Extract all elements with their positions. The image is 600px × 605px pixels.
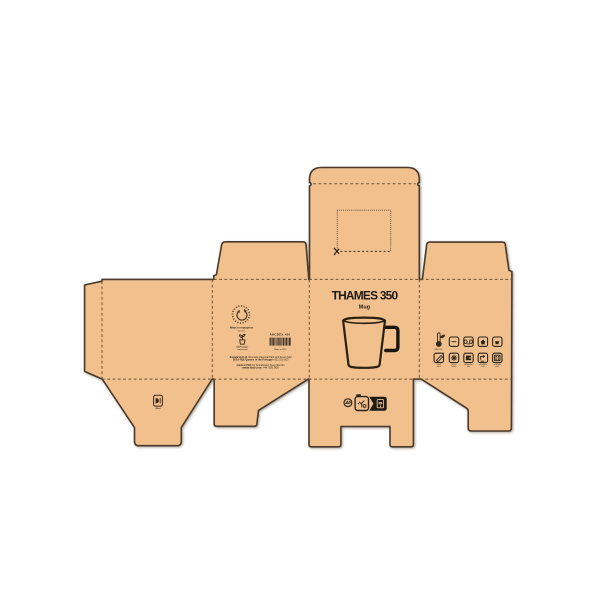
svg-text:safe: safe — [481, 366, 484, 368]
svg-text:Made in PRC: Made in PRC — [274, 349, 287, 351]
svg-text:safe: safe — [467, 366, 470, 368]
svg-text:this box: this box — [238, 330, 246, 333]
svg-text:www.tbd.com +44 020 000: www.tbd.com +44 020 000 — [242, 366, 279, 369]
svg-text:compostable: compostable — [237, 348, 248, 351]
svg-text:pack: pack — [496, 366, 500, 368]
svg-text:Mug: Mug — [359, 304, 370, 310]
svg-text:THAMES 350: THAMES 350 — [332, 288, 399, 302]
svg-text:wash: wash — [437, 366, 441, 368]
svg-text:AHCDEX 450: AHCDEX 450 — [270, 333, 291, 337]
svg-text:freeze: freeze — [452, 365, 457, 368]
svg-text:Ways to repurpose: Ways to repurpose — [230, 326, 254, 330]
svg-text:350ml: 350ml — [155, 408, 161, 410]
svg-text:MAX 120°: MAX 120° — [435, 348, 443, 351]
svg-text:SE19 4QX Queens of the Portuga: SE19 4QX Queens of the Portugal +351 210… — [233, 359, 289, 362]
